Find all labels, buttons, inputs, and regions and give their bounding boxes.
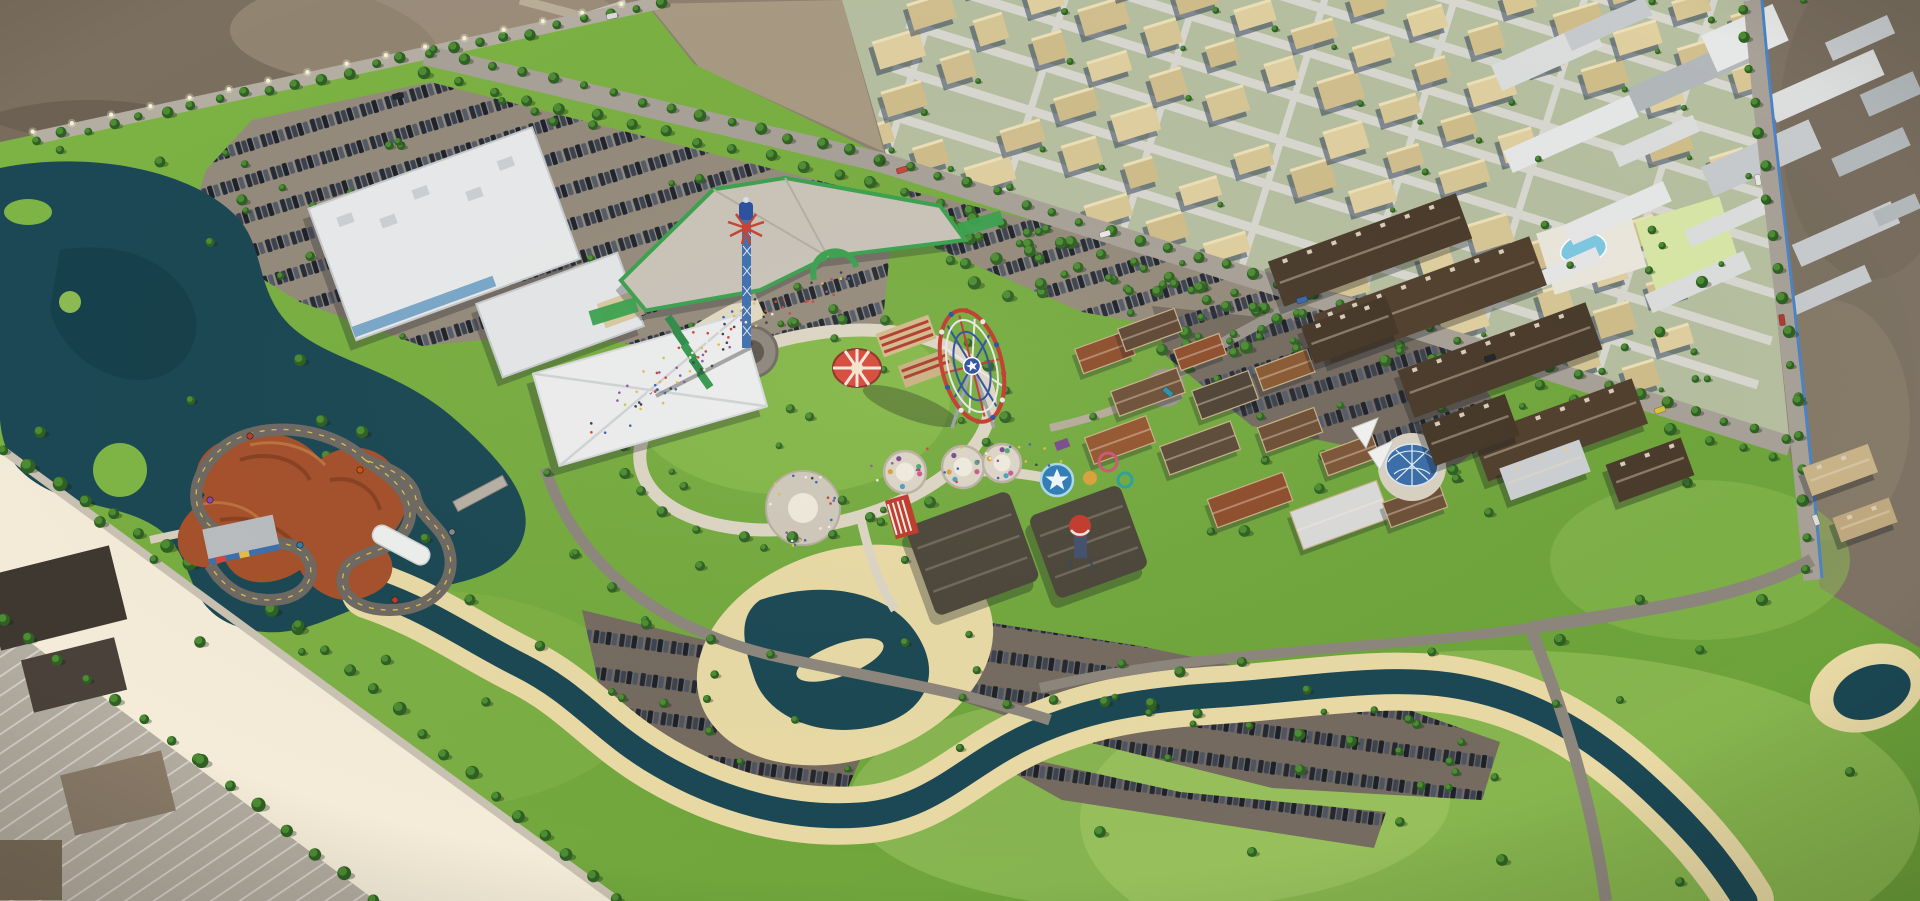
aerial-render-stage (0, 0, 1920, 901)
vignette (0, 0, 1920, 901)
aerial-render (0, 0, 1920, 901)
